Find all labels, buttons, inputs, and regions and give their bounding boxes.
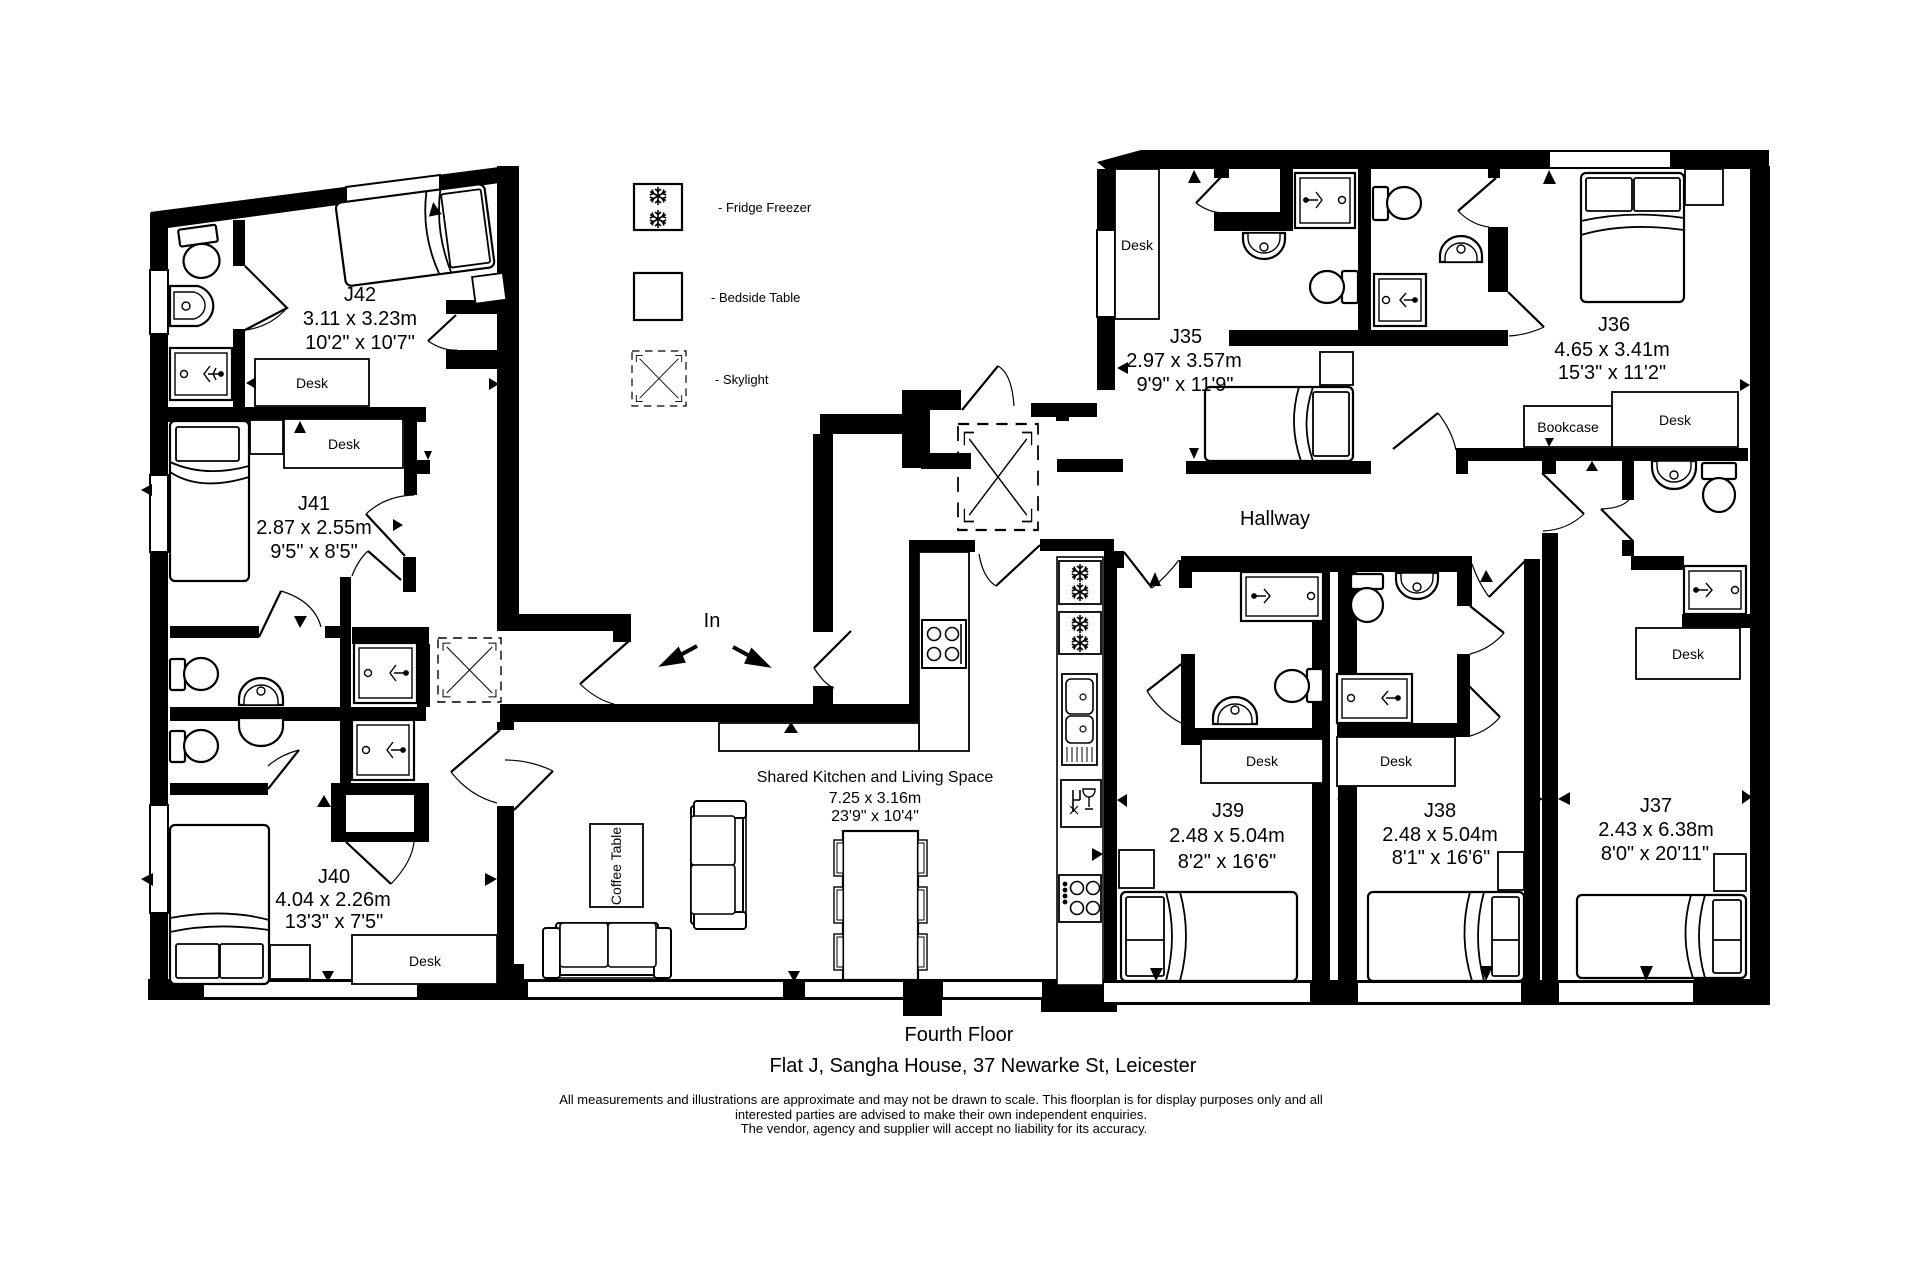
svg-text:In: In xyxy=(704,610,721,632)
svg-text:Desk: Desk xyxy=(1246,753,1279,769)
svg-text:J40: J40 xyxy=(318,866,350,888)
svg-text:J38: J38 xyxy=(1424,800,1456,822)
svg-text:J35: J35 xyxy=(1170,326,1202,348)
svg-text:The vendor, agency and supplie: The vendor, agency and supplier will acc… xyxy=(741,1121,1148,1136)
svg-text:Desk: Desk xyxy=(1121,237,1154,253)
svg-text:Flat J, Sangha House, 37 Newar: Flat J, Sangha House, 37 Newarke St, Lei… xyxy=(770,1055,1197,1077)
svg-text:J42: J42 xyxy=(344,284,376,306)
svg-text:Desk: Desk xyxy=(1659,412,1692,428)
svg-text:Desk: Desk xyxy=(1672,646,1705,662)
svg-text:Desk: Desk xyxy=(1380,753,1413,769)
svg-text:J37: J37 xyxy=(1640,795,1672,817)
svg-text:J41: J41 xyxy=(298,493,330,515)
svg-text:interested parties are advised: interested parties are advised to make t… xyxy=(735,1107,1147,1122)
svg-text:Coffee Table: Coffee Table xyxy=(608,827,624,905)
svg-text:23'9" x 10'4": 23'9" x 10'4" xyxy=(831,808,919,825)
svg-text:J36: J36 xyxy=(1598,314,1630,336)
svg-text:Bookcase: Bookcase xyxy=(1537,419,1599,435)
svg-text:15'3" x 11'2": 15'3" x 11'2" xyxy=(1558,362,1666,384)
svg-text:Fourth Floor: Fourth Floor xyxy=(905,1024,1014,1046)
svg-text:J39: J39 xyxy=(1212,800,1244,822)
svg-text:2.48 x 5.04m: 2.48 x 5.04m xyxy=(1382,824,1498,846)
svg-text:Desk: Desk xyxy=(296,375,329,391)
svg-text:- Bedside Table: - Bedside Table xyxy=(711,290,800,305)
svg-text:Shared Kitchen and Living Spac: Shared Kitchen and Living Space xyxy=(757,769,994,786)
svg-text:2.87 x 2.55m: 2.87 x 2.55m xyxy=(256,517,372,539)
svg-text:Desk: Desk xyxy=(328,436,361,452)
svg-text:4.04 x 2.26m: 4.04 x 2.26m xyxy=(275,889,391,911)
svg-text:- Fridge Freezer: - Fridge Freezer xyxy=(718,200,812,215)
svg-text:Desk: Desk xyxy=(409,953,442,969)
svg-text:8'2" x 16'6": 8'2" x 16'6" xyxy=(1178,851,1277,873)
svg-text:2.48 x 5.04m: 2.48 x 5.04m xyxy=(1169,825,1285,847)
svg-text:- Skylight: - Skylight xyxy=(715,372,769,387)
svg-text:9'9" x 11'9": 9'9" x 11'9" xyxy=(1136,374,1233,396)
svg-text:2.97 x 3.57m: 2.97 x 3.57m xyxy=(1126,350,1242,372)
svg-text:4.65 x 3.41m: 4.65 x 3.41m xyxy=(1554,339,1670,361)
svg-text:8'1" x 16'6": 8'1" x 16'6" xyxy=(1392,847,1491,869)
svg-text:2.43 x 6.38m: 2.43 x 6.38m xyxy=(1598,819,1714,841)
svg-text:3.11 x 3.23m: 3.11 x 3.23m xyxy=(303,308,417,330)
svg-text:10'2" x 10'7": 10'2" x 10'7" xyxy=(305,332,415,354)
svg-text:9'5" x 8'5": 9'5" x 8'5" xyxy=(270,541,357,563)
svg-text:All measurements and illustrat: All measurements and illustrations are a… xyxy=(559,1092,1323,1107)
svg-text:8'0" x 20'11": 8'0" x 20'11" xyxy=(1601,843,1709,865)
svg-text:13'3" x 7'5": 13'3" x 7'5" xyxy=(285,911,384,933)
svg-text:Hallway: Hallway xyxy=(1240,508,1310,530)
svg-text:7.25 x 3.16m: 7.25 x 3.16m xyxy=(829,790,922,807)
